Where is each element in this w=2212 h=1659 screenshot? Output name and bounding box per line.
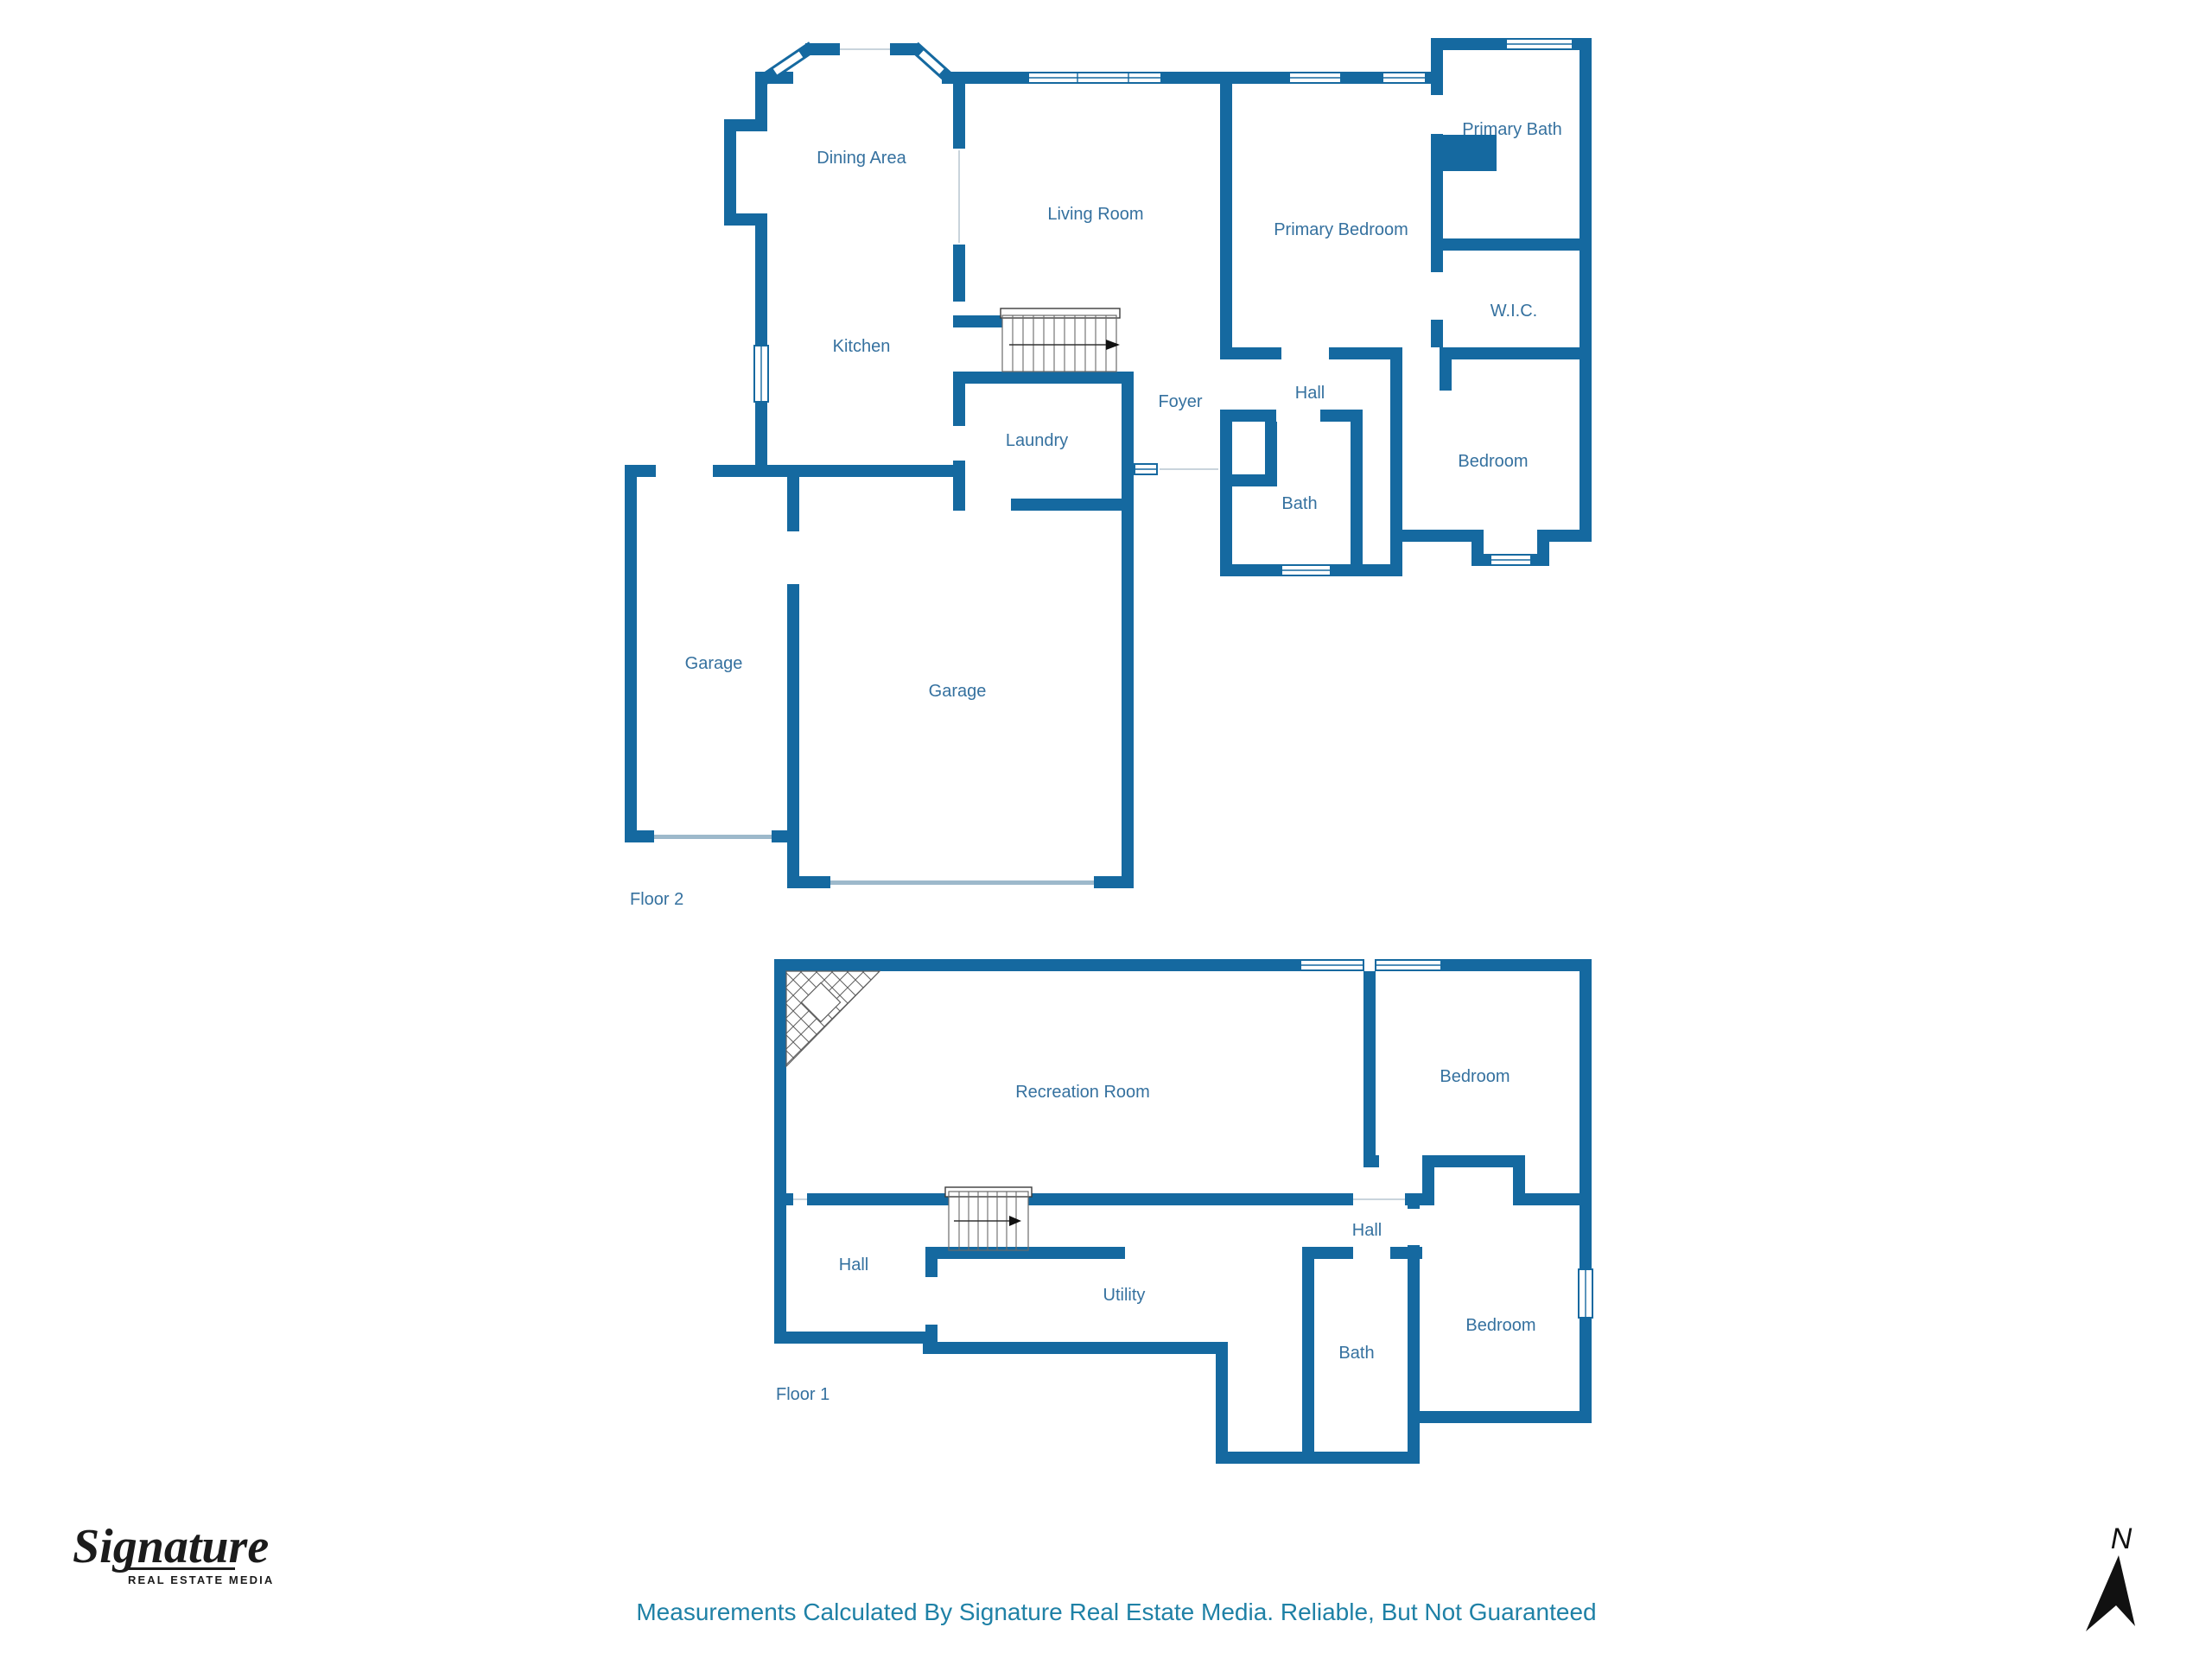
room-label-utility: Utility (1103, 1286, 1146, 1305)
stair-direction-arrow (1009, 1216, 1021, 1226)
room-label-bedroom-lower: Bedroom (1465, 1316, 1535, 1335)
window-glyph (1289, 73, 1341, 83)
room-label-primary-bedroom: Primary Bedroom (1274, 220, 1408, 239)
window-glyph (918, 49, 945, 75)
north-compass: N (2086, 1522, 2135, 1631)
room-label-bedroom-floor2: Bedroom (1458, 452, 1528, 471)
floor-plan-canvas: Dining Area Kitchen Living Room Primary … (0, 0, 2212, 1659)
stairs-floor2 (1001, 308, 1120, 372)
brand-logo: Signature REAL ESTATE MEDIA (73, 1520, 274, 1586)
window-glyph (1028, 73, 1161, 83)
floor2-windows (754, 39, 1573, 575)
logo-underline (126, 1567, 235, 1570)
room-label-primary-bath: Primary Bath (1462, 120, 1562, 139)
room-label-bedroom-upper: Bedroom (1440, 1067, 1510, 1086)
stair-direction-arrow (1106, 340, 1120, 350)
room-label-hall-left: Hall (839, 1255, 868, 1274)
window-glyph (1300, 960, 1363, 970)
room-label-living-room: Living Room (1047, 205, 1143, 224)
room-label-kitchen: Kitchen (833, 337, 891, 356)
window-glyph (1382, 73, 1426, 83)
understair-hatch (786, 971, 880, 1066)
logo-script-text: Signature (73, 1520, 269, 1573)
room-label-wic: W.I.C. (1491, 302, 1537, 321)
north-arrow-icon (2086, 1555, 2135, 1631)
window-glyph (1281, 565, 1331, 575)
window-glyph (1491, 555, 1531, 565)
footer-disclaimer: Measurements Calculated By Signature Rea… (636, 1599, 1596, 1625)
window-glyph (1376, 960, 1441, 970)
room-label-laundry: Laundry (1006, 431, 1068, 450)
room-label-bath-floor1: Bath (1338, 1344, 1374, 1363)
room-label-garage-right: Garage (929, 682, 987, 701)
primary-bath-shower (1443, 135, 1497, 171)
north-label: N (2111, 1522, 2133, 1555)
window-glyph (1579, 1269, 1592, 1318)
floor2-plan: Dining Area Kitchen Living Room Primary … (625, 38, 1592, 909)
window-glyph (1135, 464, 1157, 474)
floor1-windows (1300, 960, 1592, 1318)
room-label-hall-right: Hall (1352, 1221, 1382, 1240)
floor1-walls (774, 959, 1592, 1464)
room-label-foyer: Foyer (1158, 392, 1202, 411)
logo-sub-text: REAL ESTATE MEDIA (128, 1573, 274, 1586)
window-glyph (754, 346, 768, 402)
room-label-hall-floor2: Hall (1295, 384, 1325, 403)
floor2-label: Floor 2 (630, 890, 683, 909)
garage-door-line-right (830, 880, 1094, 885)
floor1-label: Floor 1 (776, 1385, 829, 1404)
room-label-recreation-room: Recreation Room (1015, 1083, 1150, 1102)
floor2-walls (625, 38, 1592, 888)
window-glyph (1506, 39, 1573, 49)
room-label-dining-area: Dining Area (817, 149, 906, 168)
stairs-floor1 (945, 1187, 1032, 1250)
floor1-plan: Recreation Room Bedroom Hall Hall Utilit… (774, 959, 1592, 1464)
room-label-garage-left: Garage (685, 654, 743, 673)
room-label-bath-floor2: Bath (1281, 494, 1317, 513)
garage-door-line-left (654, 835, 787, 839)
